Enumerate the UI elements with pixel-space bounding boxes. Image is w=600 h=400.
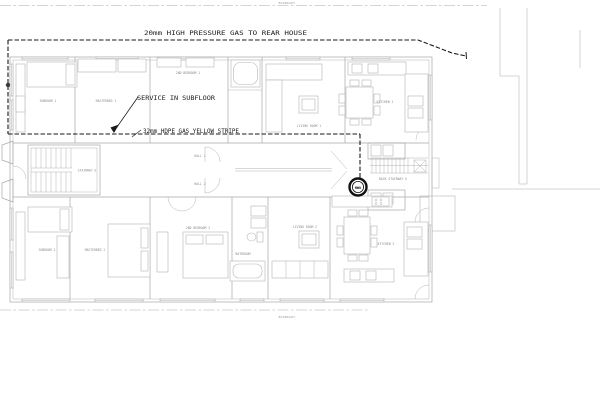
- floor-plan-svg: BOUNDARY BOUNDARY: [0, 0, 600, 400]
- room-label-hall-2: HALL 2: [194, 182, 205, 186]
- room-label-hall-1: HALL 1: [194, 154, 205, 158]
- room-label-masterbed-1: MASTERBED 1: [96, 99, 117, 103]
- site-boundary-bottom: BOUNDARY: [0, 310, 370, 319]
- gas-high-pressure-label: 20mm HIGH PRESSURE GAS TO REAR HOUSE: [144, 29, 307, 37]
- room-label-kitchen-2: KITCHEN 2: [378, 242, 395, 246]
- boundary-label-top: BOUNDARY: [279, 1, 296, 5]
- room-label-kitchen-1: KITCHEN 1: [377, 100, 394, 104]
- room-label-sunroom-2: SUNROOM 2: [39, 248, 56, 252]
- gas-service-subfloor-label: SERVICE IN SUBFLOOR: [137, 94, 215, 102]
- boundary-label-bottom: BOUNDARY: [279, 315, 296, 319]
- hwu-label: HWU: [355, 186, 362, 190]
- leader-arrowhead: [111, 125, 120, 134]
- room-label-bathroom-2: BATHROOM: [236, 252, 251, 256]
- room-label-back-stairway: BACK STAIRWAY G: [379, 177, 407, 181]
- room-label-sunroom-1: SUNROOM 1: [40, 99, 57, 103]
- furniture-unit-1: [16, 58, 428, 132]
- site-path-rear: [452, 8, 600, 189]
- room-label-living-room-2: LIVING ROOM 2: [293, 225, 317, 229]
- front-stairway: STAIRWAY G: [28, 145, 100, 195]
- gas-hdpe-label: 32mm HDPE GAS YELLOW STRIPE: [143, 127, 239, 135]
- room-label-2nd-bedroom-2: 2ND BEDROOM 2: [186, 226, 210, 230]
- room-label-2nd-bedroom-1: 2ND BEDROOM 1: [176, 71, 200, 75]
- room-label-stairway: STAIRWAY G: [78, 169, 97, 173]
- room-label-masterbed-2: MASTERBED 2: [85, 248, 106, 252]
- site-boundary-top: BOUNDARY: [0, 1, 487, 6]
- floor-plan-drawing: BOUNDARY BOUNDARY: [0, 0, 600, 400]
- gas-meter-dot: [6, 83, 10, 87]
- hwu-unit: HWU: [350, 179, 367, 196]
- furniture-unit-2: [16, 196, 428, 282]
- room-label-living-room-1: LIVING ROOM 1: [297, 124, 321, 128]
